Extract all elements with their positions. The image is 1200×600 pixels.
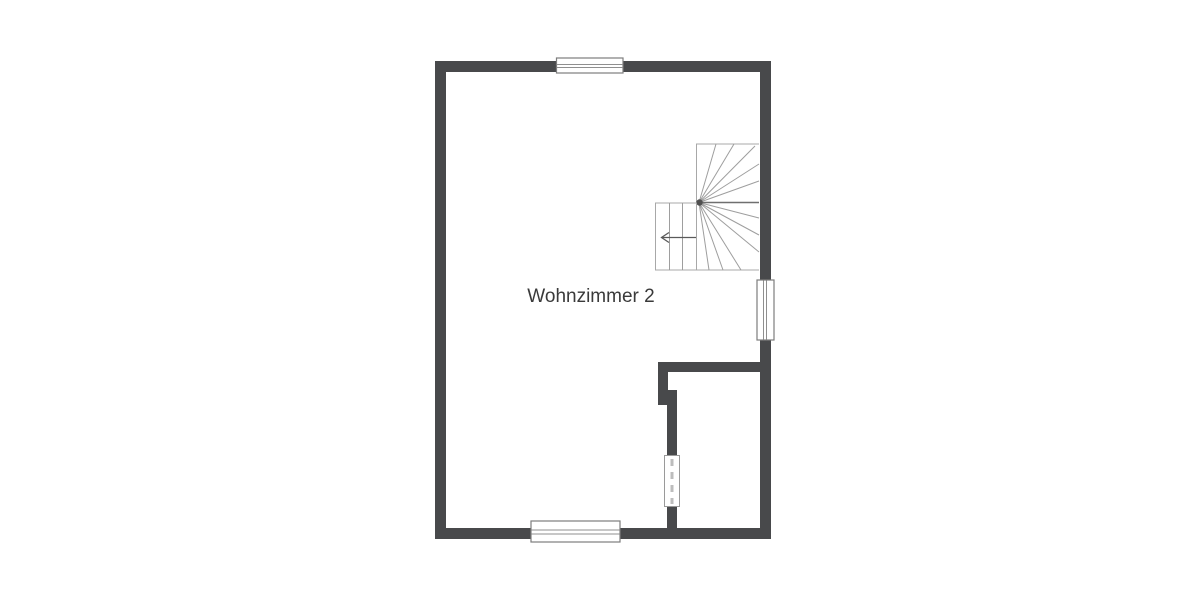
wall-left: [435, 61, 446, 539]
interior-door-window: [665, 456, 680, 507]
top-window-frame: [557, 58, 624, 73]
wall-right-upper: [760, 61, 771, 280]
small-room-top-wall: [658, 362, 760, 372]
winder-hub: [696, 199, 702, 205]
winder-treads-lower: [699, 203, 759, 271]
stair-straight-run: [656, 203, 697, 270]
small-room-wall-jog: [658, 390, 677, 405]
straight-run-treads: [670, 203, 683, 270]
bottom-window-frame: [531, 521, 620, 542]
room-label: Wohnzimmer 2: [527, 286, 654, 307]
floor-plan-canvas: Wohnzimmer 2: [0, 0, 1200, 600]
wall-right-lower: [760, 340, 771, 539]
floor-plan-page: Wohnzimmer 2: [0, 0, 1200, 600]
right-window: [757, 280, 774, 340]
top-window: [557, 58, 624, 73]
small-room-left-wall-lower: [667, 506, 677, 528]
straight-run-outline: [656, 203, 697, 270]
stair-direction-arrow: [662, 233, 697, 243]
bottom-window: [531, 521, 620, 542]
right-window-frame: [757, 280, 774, 340]
winder-treads-upper: [699, 144, 759, 203]
stair-winder-fan: [696, 144, 759, 270]
small-room-left-wall-middle: [667, 403, 677, 456]
staircase: [656, 144, 760, 270]
